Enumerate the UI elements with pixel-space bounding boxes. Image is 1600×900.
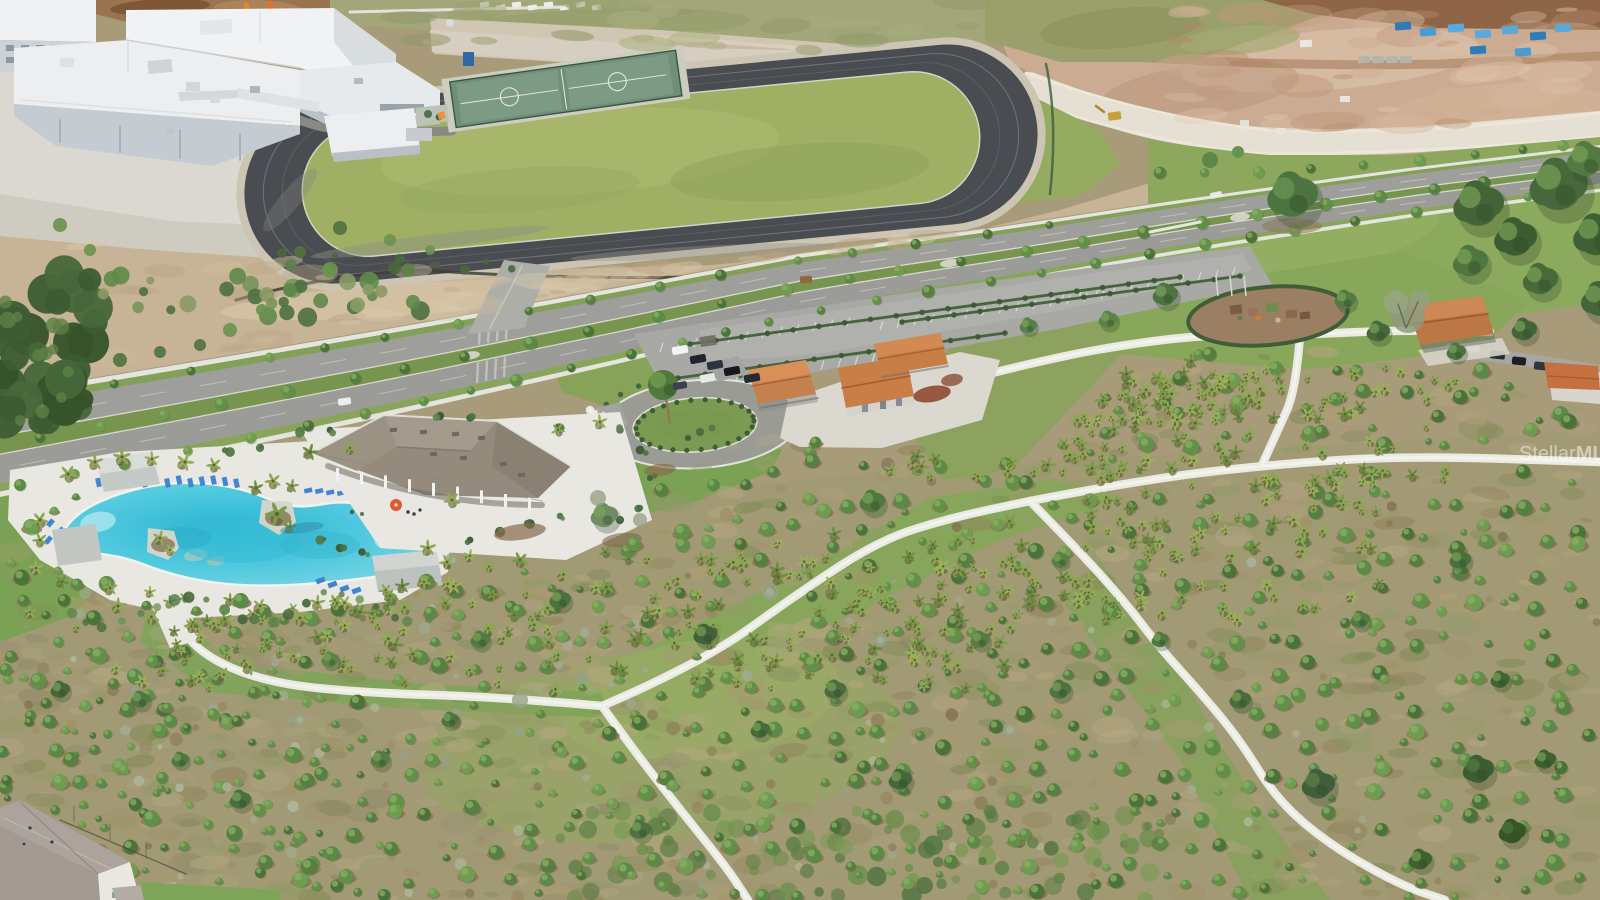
svg-text:StellarMLS: StellarMLS bbox=[1519, 443, 1600, 465]
